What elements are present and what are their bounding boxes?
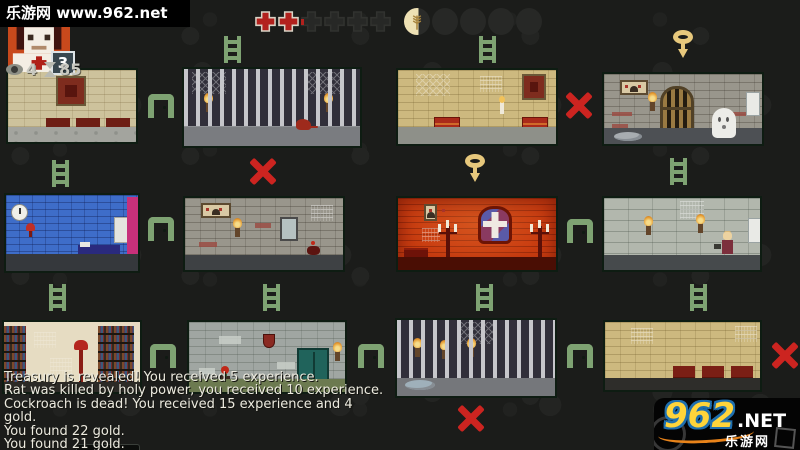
logo-site-name: 乐游网 (725, 431, 770, 450)
arch-icon[interactable] (567, 344, 593, 368)
food-pip-empty (460, 8, 486, 35)
ladder-icon[interactable] (224, 36, 241, 63)
health-cross-partial (301, 11, 322, 32)
key-icon[interactable] (463, 154, 487, 186)
blocked-x-icon (248, 156, 278, 186)
health-cross-full (278, 11, 299, 32)
blocked-x-icon (456, 403, 486, 433)
health-cross-empty (370, 11, 391, 32)
food-bar (404, 8, 542, 35)
log-line: Treasury is revealed! You received 5 exp… (4, 371, 383, 384)
health-cross-full (255, 11, 276, 32)
health-cross-empty (324, 11, 345, 32)
ladder-icon[interactable] (52, 160, 69, 187)
health-bar (255, 11, 391, 32)
log-line: You found 21 gold. (4, 438, 383, 450)
ladder-icon[interactable] (690, 284, 707, 311)
eye-icon (6, 64, 23, 75)
watermark-top: 乐游网 www.962.net (0, 0, 190, 27)
food-pip-empty (488, 8, 514, 35)
arch-icon[interactable] (567, 219, 593, 243)
arch-icon[interactable] (148, 94, 174, 118)
hourglass-count: 85 (59, 60, 81, 79)
log-line: Rat was killed by holy power, you receiv… (4, 384, 383, 397)
arch-icon[interactable] (358, 344, 384, 368)
ladder-icon[interactable] (479, 36, 496, 63)
site-logo: 962 .NET 乐游网 (654, 398, 800, 450)
food-pip-empty (432, 8, 458, 35)
food-pip-partial (404, 8, 430, 35)
eye-count: 4 (26, 60, 37, 79)
blocked-x-icon (770, 340, 800, 370)
hourglass-icon (44, 62, 56, 77)
hud-stats: 4 85 (6, 60, 81, 79)
health-cross-empty (347, 11, 368, 32)
blocked-x-icon (564, 90, 594, 120)
sketch-cube-icon (774, 427, 796, 449)
ladder-icon[interactable] (476, 284, 493, 311)
ladder-icon[interactable] (49, 284, 66, 311)
log-line: gold. (4, 411, 383, 424)
ladder-icon[interactable] (263, 284, 280, 311)
log-line: You found 22 gold. (4, 425, 383, 438)
arch-icon[interactable] (150, 344, 176, 368)
food-pip-empty (516, 8, 542, 35)
key-icon[interactable] (671, 30, 695, 62)
ladder-icon[interactable] (670, 158, 687, 185)
arch-icon[interactable] (148, 217, 174, 241)
game-screen: 乐游网 www.962.net 3 4 85 Treasury is revea… (0, 0, 800, 450)
message-log: Treasury is revealed! You received 5 exp… (4, 371, 383, 450)
log-line: Cockroach is dead! You received 15 exper… (4, 398, 383, 411)
